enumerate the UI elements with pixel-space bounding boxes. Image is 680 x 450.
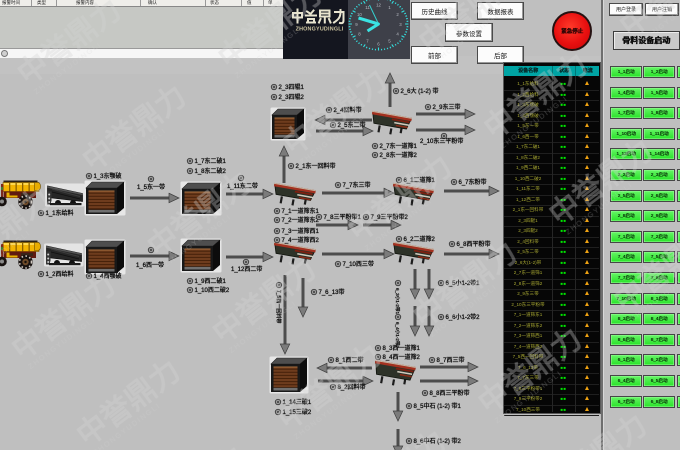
svg-text:7_7东三带: 7_7东三带 [343,181,371,189]
svg-text:6_7东粉带: 6_7东粉带 [459,178,487,186]
svg-text:8_3西一道筛1: 8_3西一道筛1 [383,344,421,352]
svg-text:1_14三破1: 1_14三破1 [283,398,312,406]
svg-text:2_7东一道筛1: 2_7东一道筛1 [380,142,418,150]
svg-text:6_1二道筛1: 6_1二道筛1 [404,176,436,184]
svg-text:7_1一道筛东1: 7_1一道筛东1 [282,207,320,215]
svg-text:1_10西二破2: 1_10西二破2 [195,286,230,294]
svg-text:7_3一道筛西1: 7_3一道筛西1 [282,227,320,235]
svg-text:1_7东二破1: 1_7东二破1 [195,157,227,165]
svg-text:1_8东二破2: 1_8东二破2 [195,167,227,175]
svg-text:2_9东三带: 2_9东三带 [433,103,461,111]
svg-text:7_9三平粉带2: 7_9三平粉带2 [371,213,409,221]
svg-text:6_4小1-2带2: 6_4小1-2带2 [394,322,401,348]
svg-text:1_11东二带: 1_11东二带 [227,182,258,190]
svg-text:1_1东给料: 1_1东给料 [46,209,74,217]
svg-text:1_12西二带: 1_12西二带 [231,265,262,273]
svg-text:7_6_13带: 7_6_13带 [319,288,345,296]
svg-text:8_8西三平粉带: 8_8西三平粉带 [430,389,470,397]
svg-text:7_8三平粉带1: 7_8三平粉带1 [324,213,362,221]
svg-text:2_10东三平粉带: 2_10东三平粉带 [420,137,463,145]
svg-text:1_15三破2: 1_15三破2 [283,408,312,416]
svg-text:8_4西一道筛2: 8_4西一道筛2 [383,353,421,361]
svg-text:2_3四辊1: 2_3四辊1 [279,83,305,91]
svg-text:6_5小1-2带1: 6_5小1-2带1 [446,279,481,287]
svg-text:8_5中石 (1-2) 带1: 8_5中石 (1-2) 带1 [414,402,462,410]
svg-text:2_1东一回料带: 2_1东一回料带 [296,162,336,170]
svg-text:2_4回料带: 2_4回料带 [334,106,362,114]
svg-text:8_1西二带: 8_1西二带 [336,356,364,364]
svg-text:8_6中石 (1-2) 带2: 8_6中石 (1-2) 带2 [414,437,462,445]
svg-text:2_8东一道筛2: 2_8东一道筛2 [380,151,418,159]
svg-text:1_4西颚破: 1_4西颚破 [94,272,122,280]
svg-text:7_5西一回料带: 7_5西一回料带 [275,290,282,323]
svg-text:1_3东颚破: 1_3东颚破 [94,172,122,180]
svg-text:6_6小1-2带2: 6_6小1-2带2 [446,313,481,321]
svg-text:1_5东一带: 1_5东一带 [137,183,165,191]
svg-text:2_5东二带: 2_5东二带 [338,121,366,129]
svg-text:2_6大 (1-2) 带: 2_6大 (1-2) 带 [401,87,439,95]
svg-text:6_8西平粉带: 6_8西平粉带 [457,240,491,248]
svg-text:7_10西三带: 7_10西三带 [343,260,374,268]
svg-text:6_3小1-2带1: 6_3小1-2带1 [394,288,401,314]
svg-text:7_4一道筛西2: 7_4一道筛西2 [282,236,320,244]
svg-text:1_9西二破1: 1_9西二破1 [195,277,227,285]
svg-text:1_2西给料: 1_2西给料 [46,270,74,278]
svg-text:8_7西三带: 8_7西三带 [437,356,465,364]
svg-text:2_3四辊2: 2_3四辊2 [279,93,305,101]
svg-text:6_2二道筛2: 6_2二道筛2 [404,235,436,243]
svg-text:8_2回料带: 8_2回料带 [338,383,366,391]
svg-text:1_6西一带: 1_6西一带 [136,261,164,269]
svg-text:7_2一道筛东2: 7_2一道筛东2 [282,216,320,224]
